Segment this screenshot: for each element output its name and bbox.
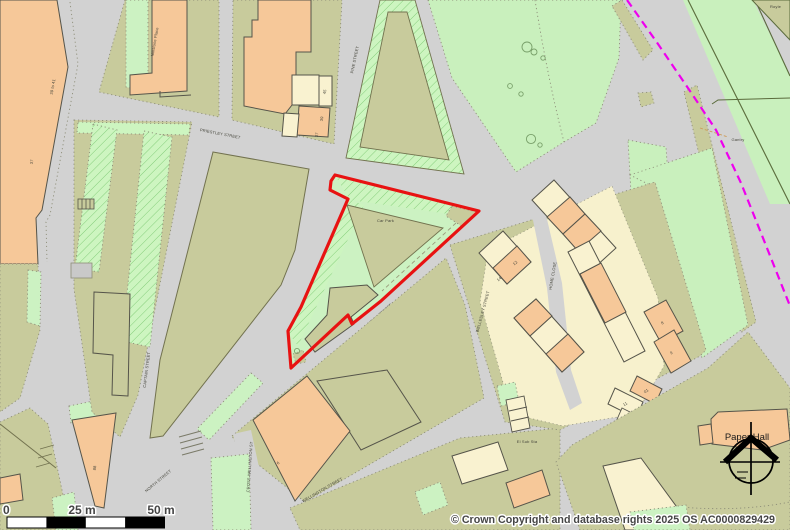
svg-text:50 m: 50 m <box>147 503 174 517</box>
svg-text:25 m: 25 m <box>68 503 95 517</box>
svg-text:Car Park: Car Park <box>377 218 394 223</box>
svg-text:Gantry: Gantry <box>732 137 745 142</box>
svg-text:0: 0 <box>3 503 10 517</box>
svg-text:Royle: Royle <box>770 4 782 9</box>
svg-text:© Crown Copyright and database: © Crown Copyright and database rights 20… <box>451 514 775 526</box>
svg-text:El Sub Sta: El Sub Sta <box>517 439 538 444</box>
